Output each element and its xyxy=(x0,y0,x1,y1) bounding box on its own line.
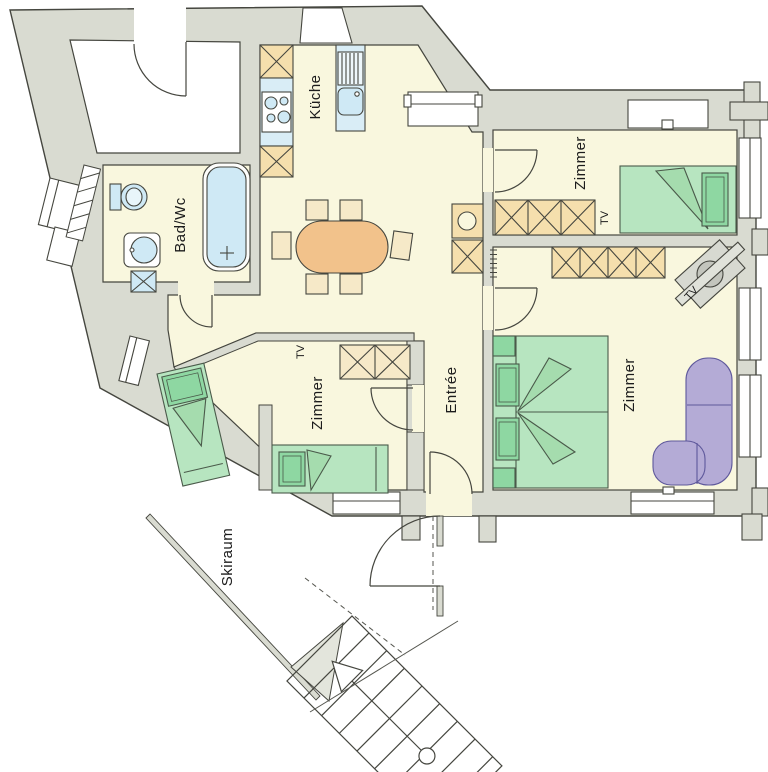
wardrobe xyxy=(495,200,595,235)
tv-label-left: TV xyxy=(295,344,307,359)
toilet-icon xyxy=(110,184,147,210)
stove-icon xyxy=(262,92,291,132)
tv-label-topright: TV xyxy=(599,210,611,225)
washbasin-icon xyxy=(124,233,160,267)
kitchen-cabinet-icon-2 xyxy=(260,146,293,177)
chair xyxy=(306,200,328,220)
chair xyxy=(340,200,362,220)
room-label-zimmer-topright: Zimmer xyxy=(572,136,589,190)
wardrobe xyxy=(552,247,665,278)
window-top-zimmer xyxy=(628,100,708,129)
wardrobe xyxy=(340,345,410,379)
room-label-zimmer-left: Zimmer xyxy=(309,376,326,430)
kitchen-cabinet-icon xyxy=(260,45,293,78)
hall-unit-x xyxy=(452,240,483,273)
chair xyxy=(390,231,413,260)
hall-unit-circle xyxy=(452,204,483,238)
dining-table xyxy=(296,221,388,273)
room-label-skiraum: Skiraum xyxy=(219,528,236,587)
chair xyxy=(306,274,328,294)
chair xyxy=(272,232,291,259)
window-bottom-left xyxy=(333,492,400,514)
room-label-kueche: Küche xyxy=(307,74,324,119)
bed-single-horizontal xyxy=(272,445,388,493)
bath-cabinet-icon xyxy=(131,271,156,292)
room-label-zimmer-bottomright: Zimmer xyxy=(621,358,638,412)
chair xyxy=(340,274,362,294)
window-right-2 xyxy=(739,288,761,360)
bed-double xyxy=(493,336,608,488)
sink-unit-icon xyxy=(336,45,365,131)
window-top-hall xyxy=(404,92,482,126)
floor-plan: Küche Bad/Wc Zimmer Zimmer Zimmer Entrée… xyxy=(0,0,768,772)
hall-cabinets xyxy=(452,204,483,273)
bed-single xyxy=(620,166,736,233)
floor-plan-canvas: Küche Bad/Wc Zimmer Zimmer Zimmer Entrée… xyxy=(0,0,768,772)
staircase xyxy=(287,616,502,772)
white-room-floor xyxy=(70,40,240,153)
window-right-1 xyxy=(739,138,761,218)
room-label-bad: Bad/Wc xyxy=(172,197,189,253)
room-label-entree: Entrée xyxy=(443,366,460,413)
radiator-ticks xyxy=(490,250,497,277)
bathtub-icon xyxy=(203,163,250,271)
window-right-3 xyxy=(739,375,761,457)
